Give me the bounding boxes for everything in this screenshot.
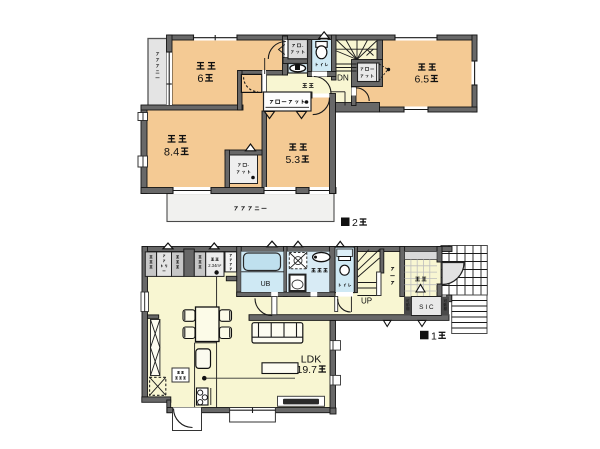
- svg-text:6.5: 6.5: [415, 74, 430, 86]
- svg-text:UP: UP: [361, 297, 372, 306]
- svg-text:6: 6: [197, 73, 203, 85]
- svg-text:5.3: 5.3: [286, 154, 301, 166]
- svg-text:DN: DN: [337, 74, 349, 83]
- svg-text:8.4: 8.4: [164, 147, 179, 159]
- svg-text:棚: 棚: [406, 306, 410, 311]
- svg-text:-: -: [247, 163, 249, 169]
- svg-text:UB: UB: [261, 281, 271, 288]
- svg-text:S I C: S I C: [419, 304, 434, 311]
- svg-text:1: 1: [431, 330, 437, 342]
- svg-text:19.7: 19.7: [297, 364, 318, 376]
- svg-text:2: 2: [352, 217, 358, 229]
- svg-text:棚: 棚: [443, 306, 447, 311]
- svg-text:2.34m²: 2.34m²: [208, 263, 222, 268]
- svg-text:-: -: [302, 44, 304, 50]
